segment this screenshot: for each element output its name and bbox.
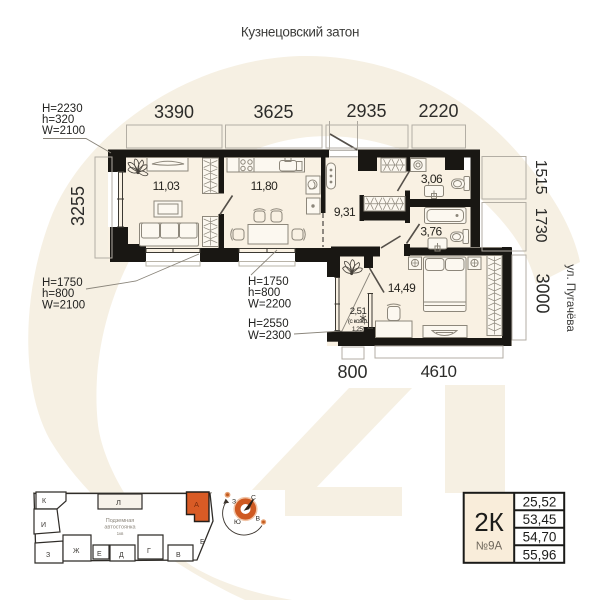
svg-text:3000: 3000 xyxy=(533,273,553,313)
svg-text:3,06: 3,06 xyxy=(421,172,443,186)
svg-text:1730: 1730 xyxy=(532,208,549,243)
svg-text:2К: 2К xyxy=(474,507,504,537)
svg-text:h=800: h=800 xyxy=(42,288,74,300)
svg-text:55,96: 55,96 xyxy=(523,547,557,562)
svg-text:25,52: 25,52 xyxy=(523,494,557,509)
svg-text:Л: Л xyxy=(116,498,121,507)
svg-text:ул. Пугачёва: ул. Пугачёва xyxy=(564,264,576,332)
svg-text:А: А xyxy=(194,500,199,509)
svg-text:3255: 3255 xyxy=(68,186,88,226)
svg-text:Кузнецовский затон: Кузнецовский затон xyxy=(241,25,359,40)
svg-text:11,80: 11,80 xyxy=(251,179,278,193)
svg-text:54,70: 54,70 xyxy=(523,529,557,544)
svg-text:53,45: 53,45 xyxy=(523,512,557,527)
svg-text:W=2200: W=2200 xyxy=(248,299,291,311)
svg-text:800: 800 xyxy=(337,362,367,382)
svg-text:И: И xyxy=(41,522,46,529)
svg-text:14,49: 14,49 xyxy=(388,281,416,295)
svg-text:автостоянка: автостоянка xyxy=(104,525,136,531)
svg-text:Е: Е xyxy=(97,551,102,558)
svg-text:3390: 3390 xyxy=(154,102,194,122)
svg-text:С: С xyxy=(251,495,256,502)
svg-text:Ю: Ю xyxy=(234,519,241,526)
svg-text:3,76: 3,76 xyxy=(420,225,442,239)
svg-text:1кв: 1кв xyxy=(117,531,124,536)
svg-text:1,25): 1,25) xyxy=(352,326,365,333)
svg-text:W=2300: W=2300 xyxy=(248,330,291,342)
svg-text:В: В xyxy=(256,516,261,523)
svg-text:h=800: h=800 xyxy=(248,287,280,299)
svg-text:3625: 3625 xyxy=(253,102,293,122)
svg-text:4610: 4610 xyxy=(421,362,457,381)
svg-text:Подземная: Подземная xyxy=(106,518,134,524)
svg-text:З: З xyxy=(232,499,236,506)
svg-text:Б: Б xyxy=(200,539,205,546)
svg-text:W=2100: W=2100 xyxy=(42,125,85,137)
svg-text:H=2550: H=2550 xyxy=(248,318,289,330)
svg-text:2935: 2935 xyxy=(346,101,386,121)
svg-text:2220: 2220 xyxy=(418,101,458,121)
svg-text:В: В xyxy=(176,552,181,559)
svg-text:9,31: 9,31 xyxy=(334,205,356,219)
svg-text:W=2100: W=2100 xyxy=(42,300,85,312)
svg-text:2,51: 2,51 xyxy=(350,306,367,317)
svg-text:11,03: 11,03 xyxy=(153,179,180,193)
svg-text:Ж: Ж xyxy=(73,548,80,555)
svg-text:Д: Д xyxy=(119,552,124,559)
svg-text:З: З xyxy=(46,552,50,559)
svg-text:Г: Г xyxy=(147,548,151,555)
svg-text:1515: 1515 xyxy=(532,160,549,195)
svg-text:(с коэф.: (с коэф. xyxy=(348,318,369,325)
svg-text:№9А: №9А xyxy=(476,541,503,553)
